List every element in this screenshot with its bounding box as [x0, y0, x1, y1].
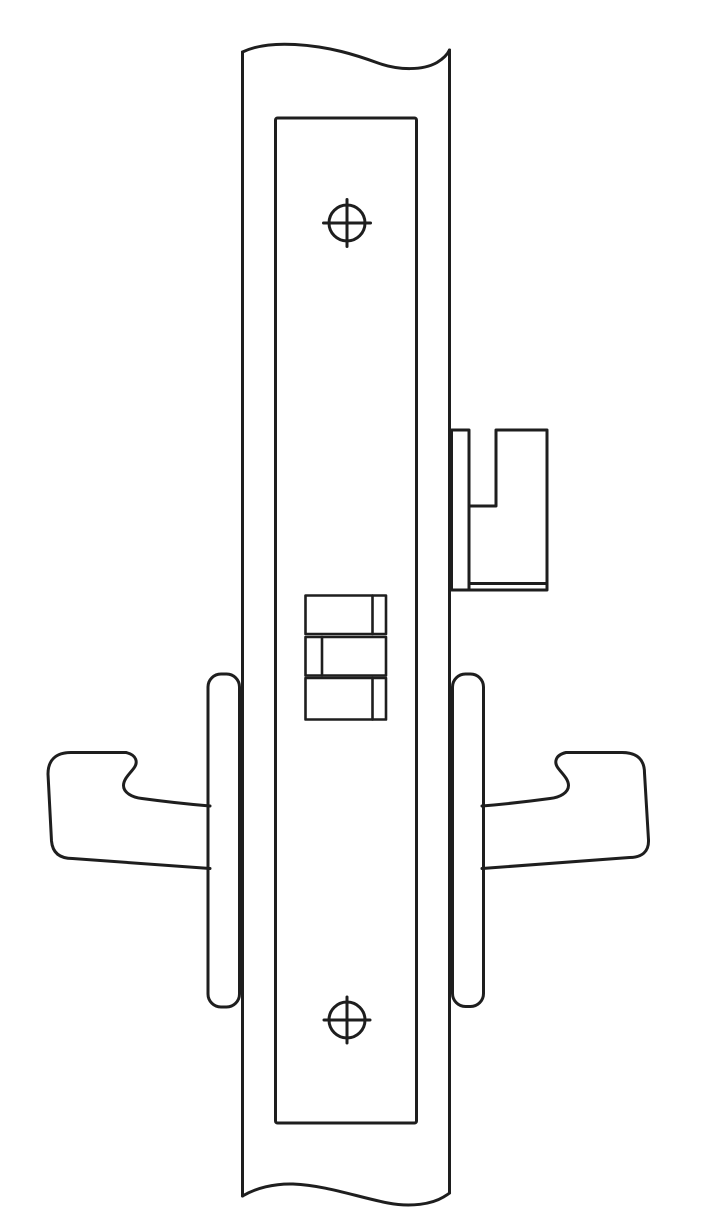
mortise-lock-diagram: [0, 0, 704, 1230]
drawing-background: [0, 0, 704, 1230]
lock-drawing-canvas: [0, 0, 704, 1230]
